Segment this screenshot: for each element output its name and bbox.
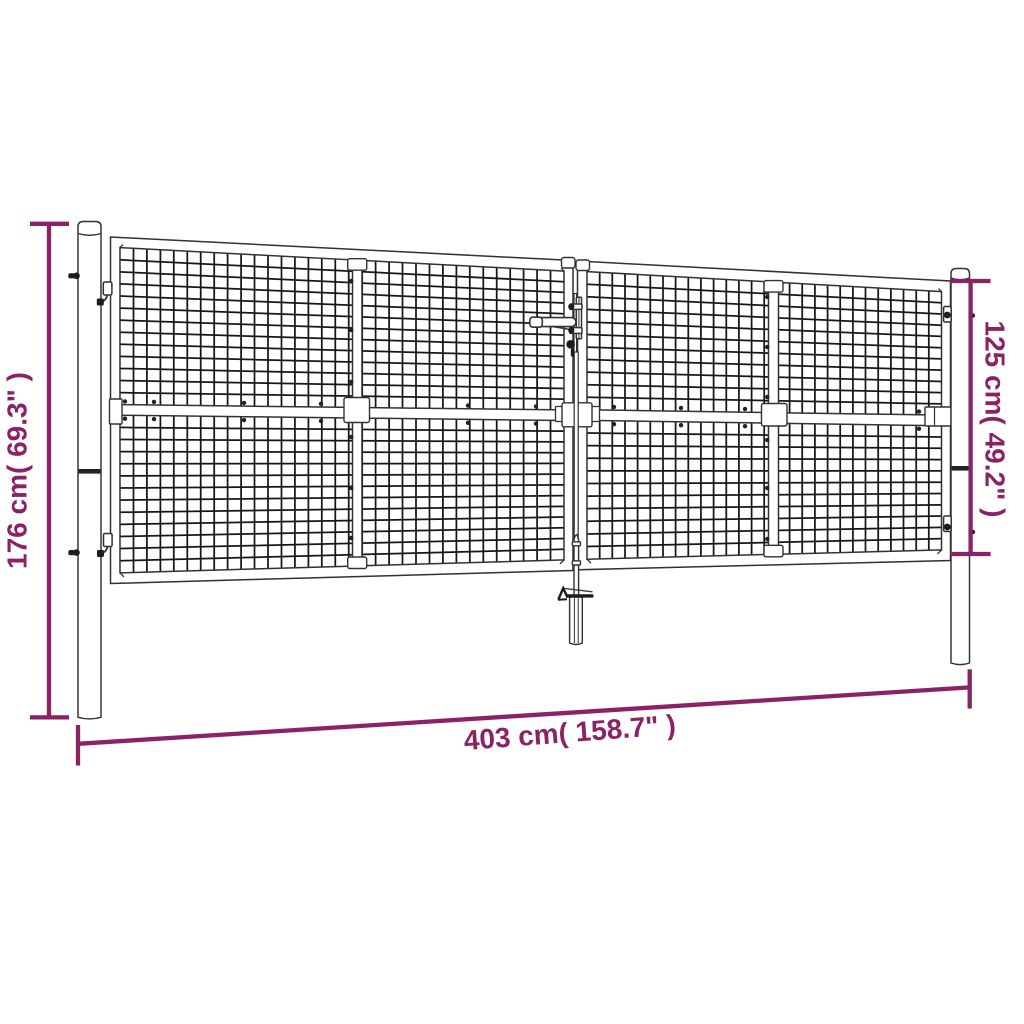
svg-text:125 cm( 49.2" ): 125 cm( 49.2" ) <box>980 321 1011 518</box>
svg-text:176 cm( 69.3" ): 176 cm( 69.3" ) <box>2 372 33 569</box>
